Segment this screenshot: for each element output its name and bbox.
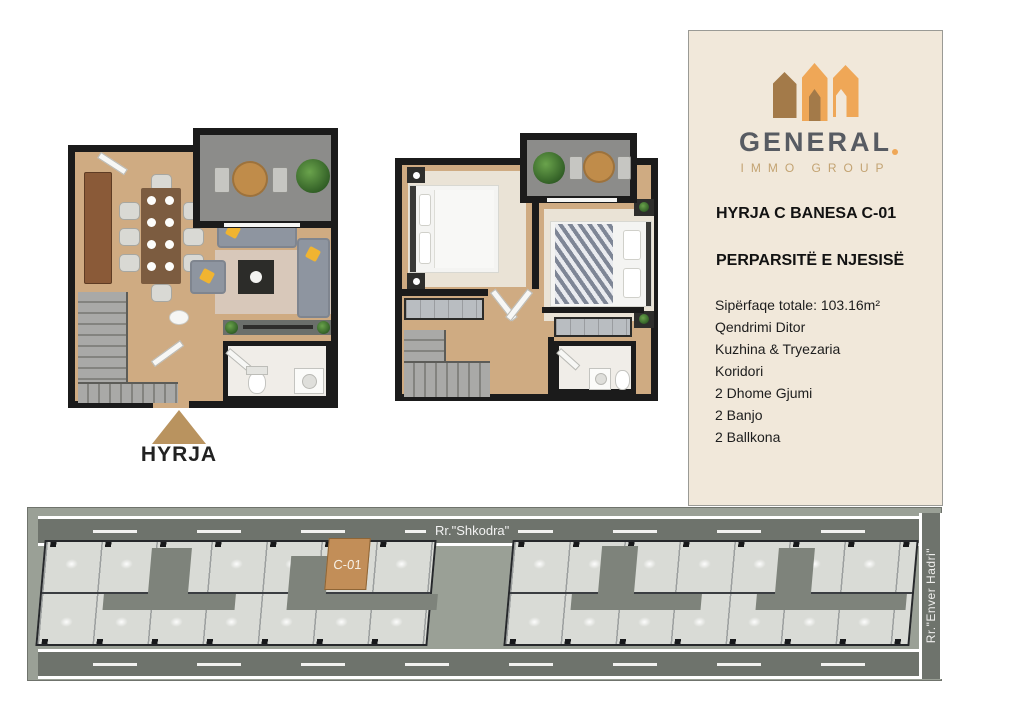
unit-title: HYRJA C BANESA C-01 xyxy=(716,205,942,223)
facade-openings xyxy=(510,639,904,644)
balcony-chair xyxy=(272,167,288,193)
brand-name-text: GENERAL xyxy=(739,127,892,157)
building-block-b xyxy=(503,540,918,646)
entrance-arrow-icon xyxy=(152,410,206,444)
toilet xyxy=(615,370,630,390)
plant xyxy=(317,321,330,334)
balcony-plant xyxy=(533,152,565,184)
balcony-chair xyxy=(214,167,230,193)
vanity-sink xyxy=(294,368,324,394)
dining-chair xyxy=(183,228,204,246)
detail-item: Qendrimi Ditor xyxy=(715,316,942,338)
road-center-line xyxy=(93,663,891,666)
facade-openings xyxy=(42,639,422,644)
street-back xyxy=(38,649,921,679)
stair-core xyxy=(148,548,192,594)
entrance-label: HYRJA xyxy=(119,443,239,467)
decor-vase xyxy=(169,310,189,325)
bed-double xyxy=(550,221,652,307)
balcony-window xyxy=(224,223,300,227)
nightstand xyxy=(634,199,654,216)
bed-double xyxy=(409,185,499,273)
stair-core xyxy=(288,556,329,594)
section-title: PERPARSITË E NJESISË xyxy=(716,252,942,270)
dining-chair xyxy=(151,284,172,302)
nightstand xyxy=(634,311,654,328)
hall-door-leaf xyxy=(505,289,533,322)
detail-item: 2 Ballkona xyxy=(715,426,942,448)
floor-plan-living xyxy=(68,128,338,408)
stairs-lower-flight xyxy=(78,382,178,403)
bathroom-2 xyxy=(554,341,636,394)
brand-subtitle: IMMO GROUP xyxy=(689,161,942,175)
highlighted-unit-c01: C-01 xyxy=(324,538,371,590)
dining-chair xyxy=(119,228,140,246)
brand-logo-icon xyxy=(773,63,859,121)
corridor xyxy=(287,594,438,610)
floor-plan-bedrooms xyxy=(395,133,658,401)
vanity-sink xyxy=(589,368,611,390)
detail-item: Kuzhina & Tryezaria xyxy=(715,338,942,360)
street-shkodra-label: Rr."Shkodra" xyxy=(426,523,518,538)
toilet-tank xyxy=(246,366,268,375)
wall xyxy=(402,289,488,296)
balcony-chair xyxy=(569,156,583,180)
coffee-table xyxy=(238,260,274,294)
dining-chair xyxy=(119,202,140,220)
balcony-living xyxy=(193,128,338,228)
brand-dot-icon xyxy=(892,149,898,155)
toilet xyxy=(248,372,266,394)
dining-chair xyxy=(119,254,140,272)
wardrobe xyxy=(404,298,484,320)
bathroom-door-leaf xyxy=(556,348,580,371)
balcony-table xyxy=(232,161,268,197)
balcony-bedroom xyxy=(520,133,637,203)
armchair xyxy=(190,260,226,294)
wall xyxy=(542,307,644,313)
balcony-chair xyxy=(617,156,631,180)
site-plan: Rr."Shkodra" Rr."Enver Hadri" C-01 xyxy=(27,507,942,681)
console-shelf xyxy=(223,320,331,335)
bathroom-1 xyxy=(223,341,331,401)
street-enver-hadri-label: Rr."Enver Hadri" xyxy=(924,548,938,643)
street-enver-hadri: Rr."Enver Hadri" xyxy=(919,513,943,679)
real-estate-flyer: HYRJA GENERAL IMMO GROUP HYRJA C BANESA … xyxy=(0,0,1011,713)
stair-core xyxy=(598,546,638,594)
hall-closet xyxy=(554,317,632,337)
balcony-window xyxy=(547,198,617,202)
nightstand xyxy=(407,167,425,183)
stairs-upper-flight xyxy=(78,292,128,382)
corridor xyxy=(756,594,907,610)
corridor xyxy=(103,594,236,610)
facade-openings xyxy=(518,542,912,547)
plant xyxy=(225,321,238,334)
entry-door-leaf xyxy=(151,340,184,367)
info-panel: GENERAL IMMO GROUP HYRJA C BANESA C-01 P… xyxy=(688,30,943,506)
stairs-lower-flight xyxy=(404,361,490,397)
stair-core xyxy=(775,548,815,594)
sofa xyxy=(297,238,330,318)
detail-item: Koridori xyxy=(715,360,942,382)
detail-item: 2 Banjo xyxy=(715,404,942,426)
kitchen-sideboard xyxy=(84,172,112,284)
nightstand xyxy=(407,273,425,289)
detail-total-area: Sipërfaqe totale: 103.16m² xyxy=(715,294,942,316)
brand-name: GENERAL xyxy=(689,127,942,158)
building-block-a: C-01 xyxy=(35,540,436,646)
facade-openings xyxy=(50,542,430,547)
balcony-plant xyxy=(296,159,330,193)
detail-item: 2 Dhome Gjumi xyxy=(715,382,942,404)
unit-details-list: Sipërfaqe totale: 103.16m² Qendrimi Dito… xyxy=(715,294,942,448)
balcony-table xyxy=(583,151,615,183)
corridor xyxy=(571,594,702,610)
dining-table xyxy=(141,188,181,284)
